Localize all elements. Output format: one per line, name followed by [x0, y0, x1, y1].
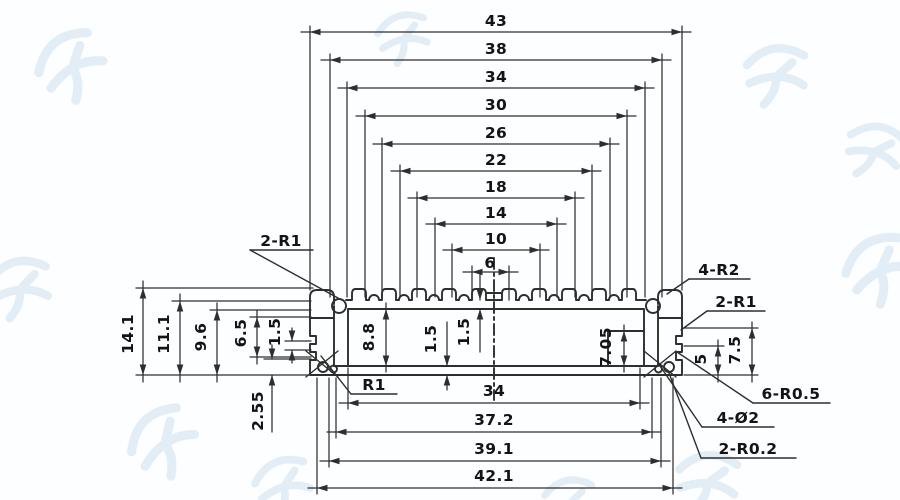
callout-4-r2: 4-R2	[698, 261, 740, 279]
dim-left-9-6: 9.6	[192, 323, 210, 352]
dim-top-34: 34	[485, 68, 507, 86]
callout-6-r0-5: 6-R0.5	[761, 385, 820, 403]
dimension-arrows	[140, 29, 756, 492]
dim-bottom-39-1: 39.1	[474, 440, 514, 458]
callout-4-dia-2: 4-Ø2	[717, 409, 760, 427]
dim-mid-1-5-top-wall: 1.5	[455, 318, 473, 347]
dim-bottom-37-2: 37.2	[474, 411, 514, 429]
dim-mid-8-8: 8.8	[360, 323, 378, 352]
dim-mid-1-5-bottom-wall: 1.5	[422, 325, 440, 354]
dim-left-2-55: 2.55	[249, 391, 267, 431]
dim-left-11-1: 11.1	[155, 314, 173, 354]
profile-right-wall	[676, 318, 682, 375]
dim-top-26: 26	[485, 124, 507, 142]
dim-left-14-1: 14.1	[119, 314, 137, 354]
dim-top-14: 14	[485, 204, 507, 222]
callout-2-r0-2: 2-R0.2	[718, 440, 777, 458]
dim-left-6-5: 6.5	[232, 319, 250, 348]
dim-top-38: 38	[485, 40, 507, 58]
dim-top-43: 43	[485, 12, 507, 30]
drawing-sheet: 43 38 34 30 26 22 18 14 10 6 34 37.2 39.…	[0, 0, 900, 500]
dimension-lines	[136, 26, 758, 494]
profile-left-wall	[310, 318, 316, 375]
dim-left-1-5: 1.5	[266, 318, 284, 347]
heatsink-drawing: 43 38 34 30 26 22 18 14 10 6 34 37.2 39.…	[0, 0, 900, 500]
callout-2-r1-right: 2-R1	[715, 293, 757, 311]
callout-2-r1-top-left: 2-R1	[260, 232, 302, 250]
dim-top-30: 30	[485, 96, 507, 114]
dim-mid-7-05: 7.05	[597, 327, 615, 367]
dim-bottom-42-1: 42.1	[474, 467, 514, 485]
dim-top-18: 18	[485, 178, 507, 196]
dim-top-6: 6	[484, 254, 495, 272]
dim-right-5: 5	[692, 353, 710, 364]
dim-top-22: 22	[485, 151, 507, 169]
profile-fins	[346, 289, 646, 300]
dim-right-7-5: 7.5	[726, 336, 744, 365]
dim-top-10: 10	[485, 230, 507, 248]
callout-r1: R1	[362, 376, 386, 394]
dim-bottom-34: 34	[483, 382, 505, 400]
dimension-text-layer: 43 38 34 30 26 22 18 14 10 6 34 37.2 39.…	[119, 12, 821, 485]
